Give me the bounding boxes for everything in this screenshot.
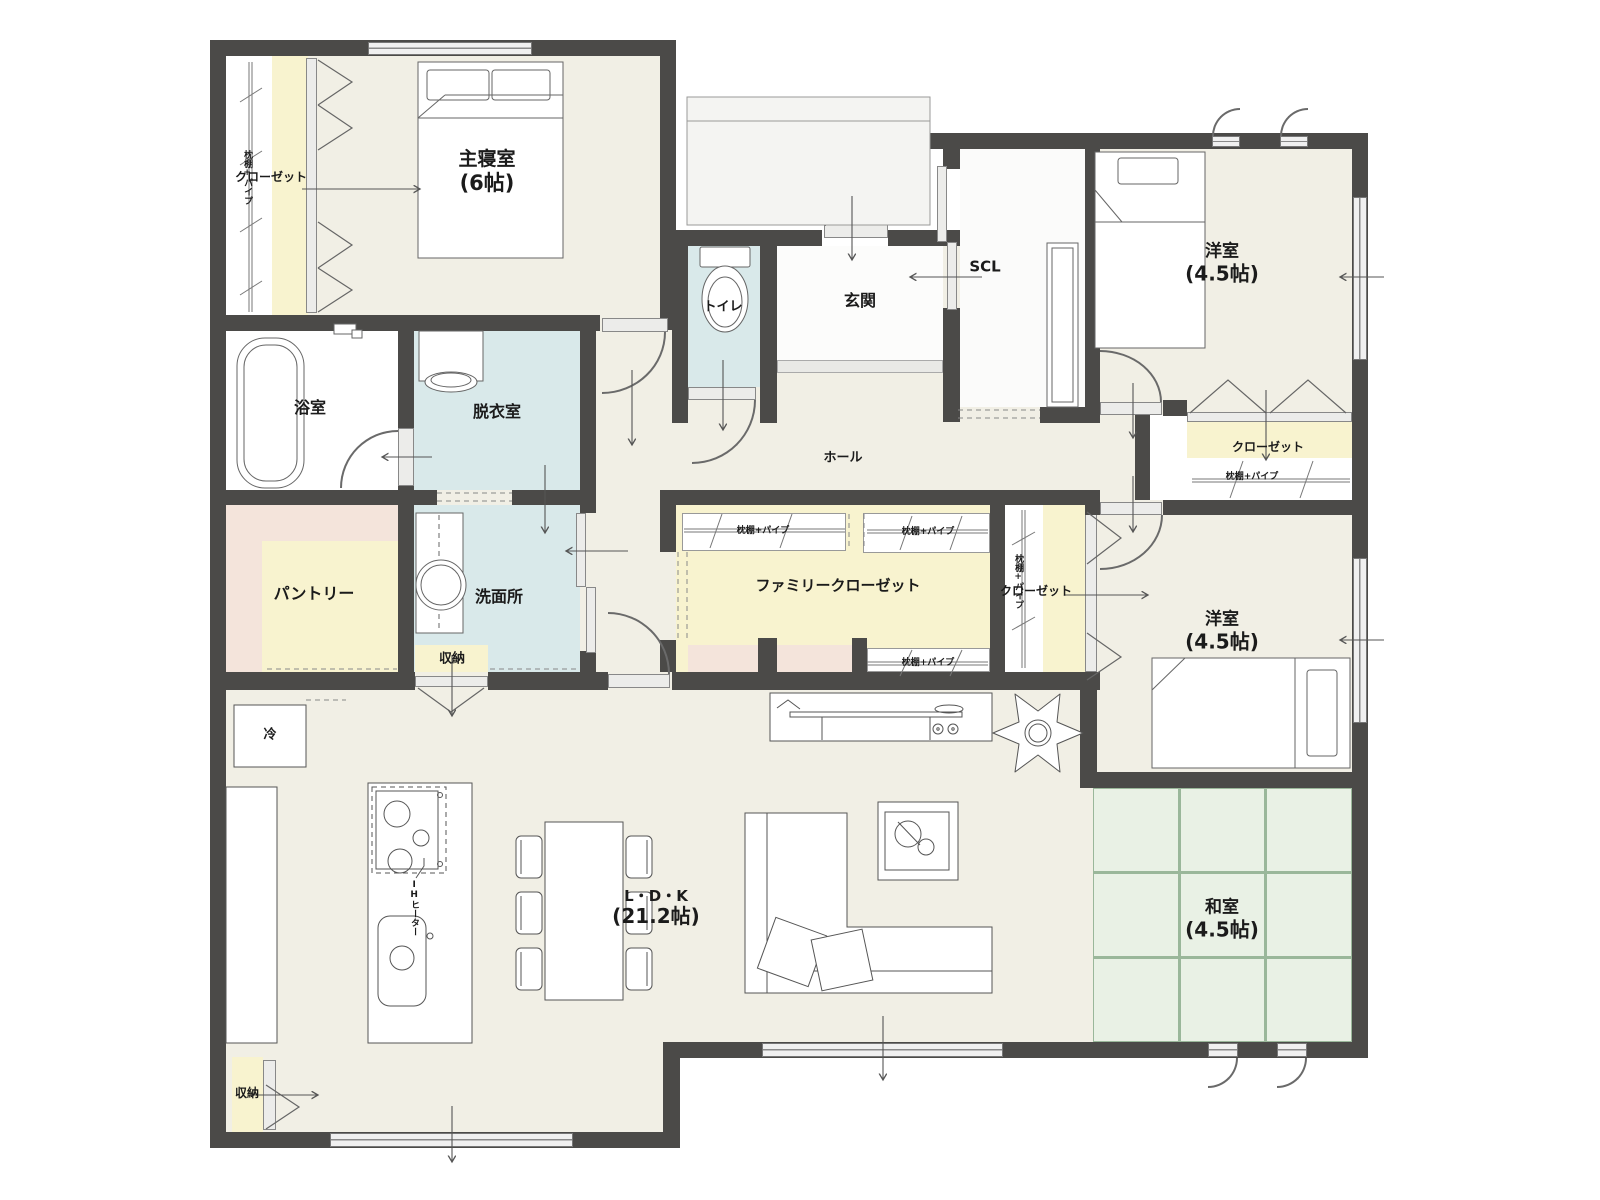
washing-machine-icon	[419, 331, 483, 392]
room-name: 主寝室	[458, 149, 515, 171]
side-table-icon	[878, 802, 958, 880]
bedroom-se-bed-icon	[1152, 658, 1350, 768]
room-name: 洋室	[1185, 243, 1259, 263]
plant-icon	[993, 694, 1083, 772]
room-label-tatami: 和室 (4.5帖)	[1185, 899, 1259, 942]
entrance-porch	[687, 97, 930, 225]
room-label-closet-mid: クローゼット	[1000, 585, 1072, 599]
shelf-pipe-label: 枕棚+パイプ	[242, 150, 252, 205]
room-label-bathroom: 浴室	[294, 399, 326, 417]
scl-shelf-icon	[1047, 243, 1078, 407]
toilet-icon	[700, 247, 750, 332]
room-label-bedroom-ne: 洋室 (4.5帖)	[1185, 243, 1259, 286]
floor-plan: 主寝室 (6帖) クローゼット 枕棚+パイプ 浴室 脱衣室 トイレ 玄関 SCL…	[0, 0, 1600, 1200]
tv-board-icon	[770, 693, 992, 741]
ih-heater-label: IHヒーター	[409, 880, 419, 936]
room-label-master-bedroom: 主寝室 (6帖)	[458, 149, 515, 195]
room-size: (4.5帖)	[1185, 630, 1259, 653]
kitchen-counter-icon	[226, 787, 277, 1043]
kitchen-island-icon	[368, 783, 472, 1043]
room-name: 洋室	[1185, 611, 1259, 631]
room-label-bedroom-se: 洋室 (4.5帖)	[1185, 611, 1259, 654]
shelf-pipe-label: 枕棚+パイプ	[1013, 554, 1023, 609]
room-name: 和室	[1185, 899, 1259, 919]
room-label-pantry: パントリー	[274, 585, 355, 603]
room-label-entrance: 玄関	[844, 292, 876, 310]
fridge-label: 冷	[263, 729, 276, 744]
room-size: (4.5帖)	[1185, 262, 1259, 285]
room-label-dressing: 脱衣室	[473, 403, 521, 421]
room-label-washroom: 洗面所	[475, 588, 523, 606]
room-size: (6帖)	[458, 171, 515, 195]
shelf-pipe-label: 枕棚+パイプ	[902, 658, 955, 668]
room-name: L・D・K	[612, 888, 700, 905]
room-size: (4.5帖)	[1185, 918, 1259, 941]
room-size: (21.2帖)	[612, 905, 700, 928]
room-label-storage-sw: 収納	[235, 1087, 259, 1101]
vanity-sink-icon	[416, 513, 466, 633]
room-label-ldk: L・D・K (21.2帖)	[612, 888, 700, 928]
room-label-hall: ホール	[823, 452, 862, 467]
shelf-pipe-label: 枕棚+パイプ	[1226, 472, 1279, 482]
room-label-closet-ne: クローゼット	[1232, 441, 1304, 455]
shelf-pipe-label: 枕棚+パイプ	[737, 526, 790, 536]
room-label-toilet: トイレ	[703, 301, 742, 316]
dashed-openings	[267, 410, 1040, 700]
shelf-pipe-label: 枕棚+パイプ	[902, 527, 955, 537]
room-label-scl: SCL	[969, 258, 1000, 275]
room-label-storage-inner: 収納	[439, 653, 465, 668]
room-label-family-closet: ファミリークローゼット	[755, 577, 920, 594]
